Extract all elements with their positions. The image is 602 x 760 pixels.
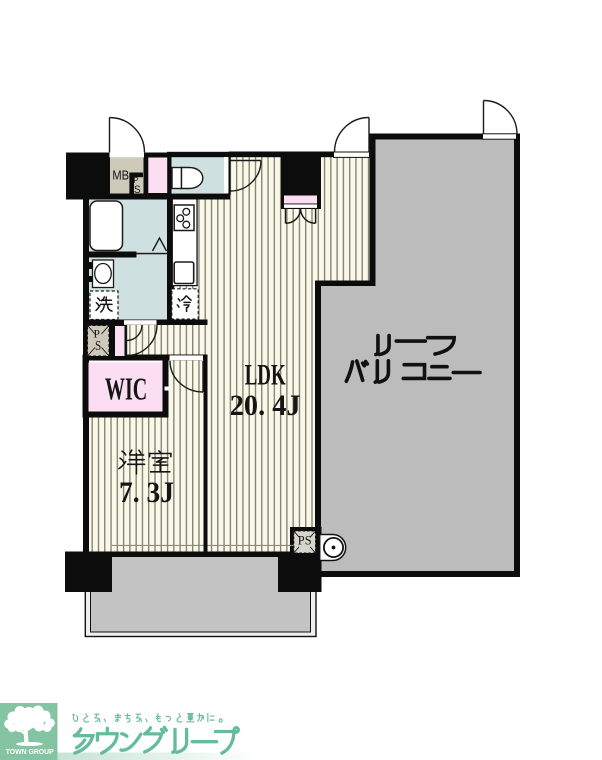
svg-text:S: S xyxy=(134,184,141,196)
svg-text:PS: PS xyxy=(298,534,312,548)
svg-text:7. 3J: 7. 3J xyxy=(119,476,174,509)
svg-text:20. 4J: 20. 4J xyxy=(230,389,301,422)
svg-text:S: S xyxy=(95,338,101,353)
svg-text:WIC: WIC xyxy=(105,371,147,407)
svg-text:LDK: LDK xyxy=(245,359,286,392)
svg-text:TOWN GROUP: TOWN GROUP xyxy=(6,748,54,756)
svg-text:MB: MB xyxy=(112,167,129,182)
